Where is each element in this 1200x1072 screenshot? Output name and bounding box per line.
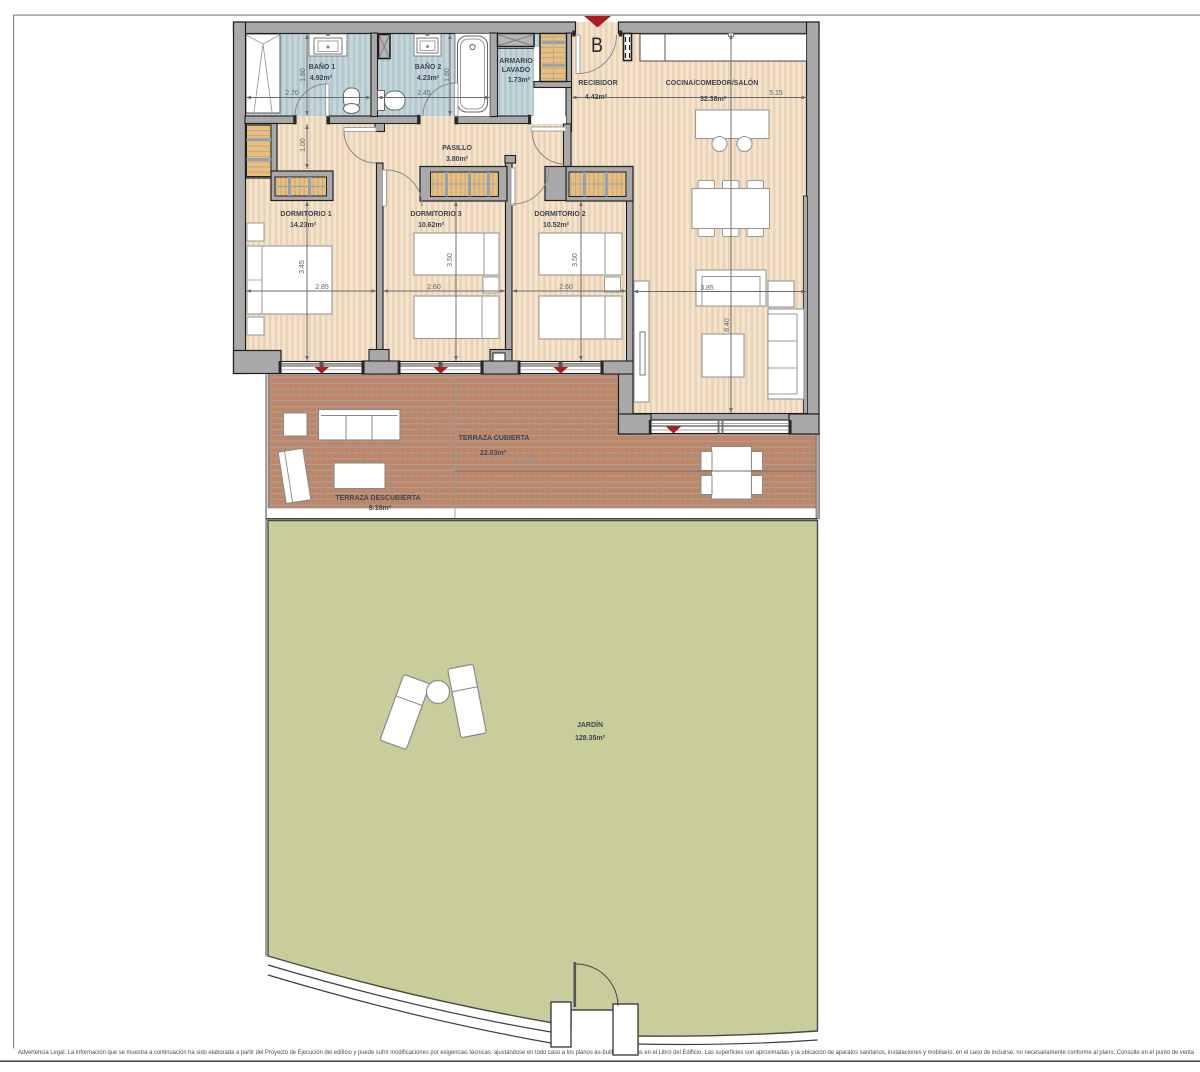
svg-text:2.45: 2.45 xyxy=(417,90,431,97)
svg-text:BAÑO 2: BAÑO 2 xyxy=(415,62,442,71)
svg-text:ARMARIO: ARMARIO xyxy=(499,58,533,65)
svg-text:32.38m²: 32.38m² xyxy=(700,96,727,103)
svg-text:PASILLO: PASILLO xyxy=(442,145,472,152)
svg-text:5.15: 5.15 xyxy=(769,90,783,97)
svg-text:Advertencia Legal: La informac: Advertencia Legal: La información que se… xyxy=(18,1049,1194,1056)
svg-text:DORMITORIO 1: DORMITORIO 1 xyxy=(280,211,331,218)
svg-text:COCINA/COMEDOR/SALÓN: COCINA/COMEDOR/SALÓN xyxy=(666,78,759,87)
svg-text:10.52m²: 10.52m² xyxy=(543,222,570,229)
svg-text:DORMITORIO 3: DORMITORIO 3 xyxy=(410,211,461,218)
svg-text:14.23m²: 14.23m² xyxy=(290,222,317,229)
svg-text:10.62m²: 10.62m² xyxy=(418,222,445,229)
svg-text:BAÑO 1: BAÑO 1 xyxy=(309,62,336,71)
svg-text:4.92m²: 4.92m² xyxy=(310,75,333,82)
svg-text:RECIBIDOR: RECIBIDOR xyxy=(578,80,617,87)
svg-text:LAVADO: LAVADO xyxy=(502,67,531,74)
svg-text:8.40: 8.40 xyxy=(724,318,731,332)
svg-text:3.45: 3.45 xyxy=(299,260,306,274)
svg-text:JARDÍN: JARDÍN xyxy=(577,720,603,729)
svg-text:3.50: 3.50 xyxy=(447,253,454,267)
svg-text:8.18m²: 8.18m² xyxy=(369,505,392,512)
svg-text:TERRAZA CUBIERTA: TERRAZA CUBIERTA xyxy=(459,435,530,442)
svg-text:DORMITORIO 2: DORMITORIO 2 xyxy=(534,211,585,218)
svg-text:1.73m²: 1.73m² xyxy=(508,77,531,84)
svg-text:TERRAZA DESCUBIERTA: TERRAZA DESCUBIERTA xyxy=(335,495,420,502)
svg-text:11.90: 11.90 xyxy=(518,459,535,466)
svg-text:3.85: 3.85 xyxy=(700,285,714,292)
svg-text:22.03m²: 22.03m² xyxy=(480,450,507,457)
svg-text:2.60: 2.60 xyxy=(559,284,573,291)
svg-text:1.80: 1.80 xyxy=(444,68,451,82)
svg-text:3.50: 3.50 xyxy=(572,253,579,267)
svg-text:2.70: 2.70 xyxy=(285,90,299,97)
svg-text:B: B xyxy=(591,34,603,57)
svg-text:128.35m²: 128.35m² xyxy=(575,735,606,742)
svg-text:3.80m²: 3.80m² xyxy=(446,156,469,163)
svg-text:2.85: 2.85 xyxy=(315,284,329,291)
svg-text:2.60: 2.60 xyxy=(427,284,441,291)
svg-text:4.42m²: 4.42m² xyxy=(585,94,608,101)
svg-text:4.23m²: 4.23m² xyxy=(417,75,440,82)
svg-text:1.80: 1.80 xyxy=(300,68,307,82)
svg-text:1.00: 1.00 xyxy=(300,138,307,152)
svg-text:1.50: 1.50 xyxy=(445,423,452,436)
